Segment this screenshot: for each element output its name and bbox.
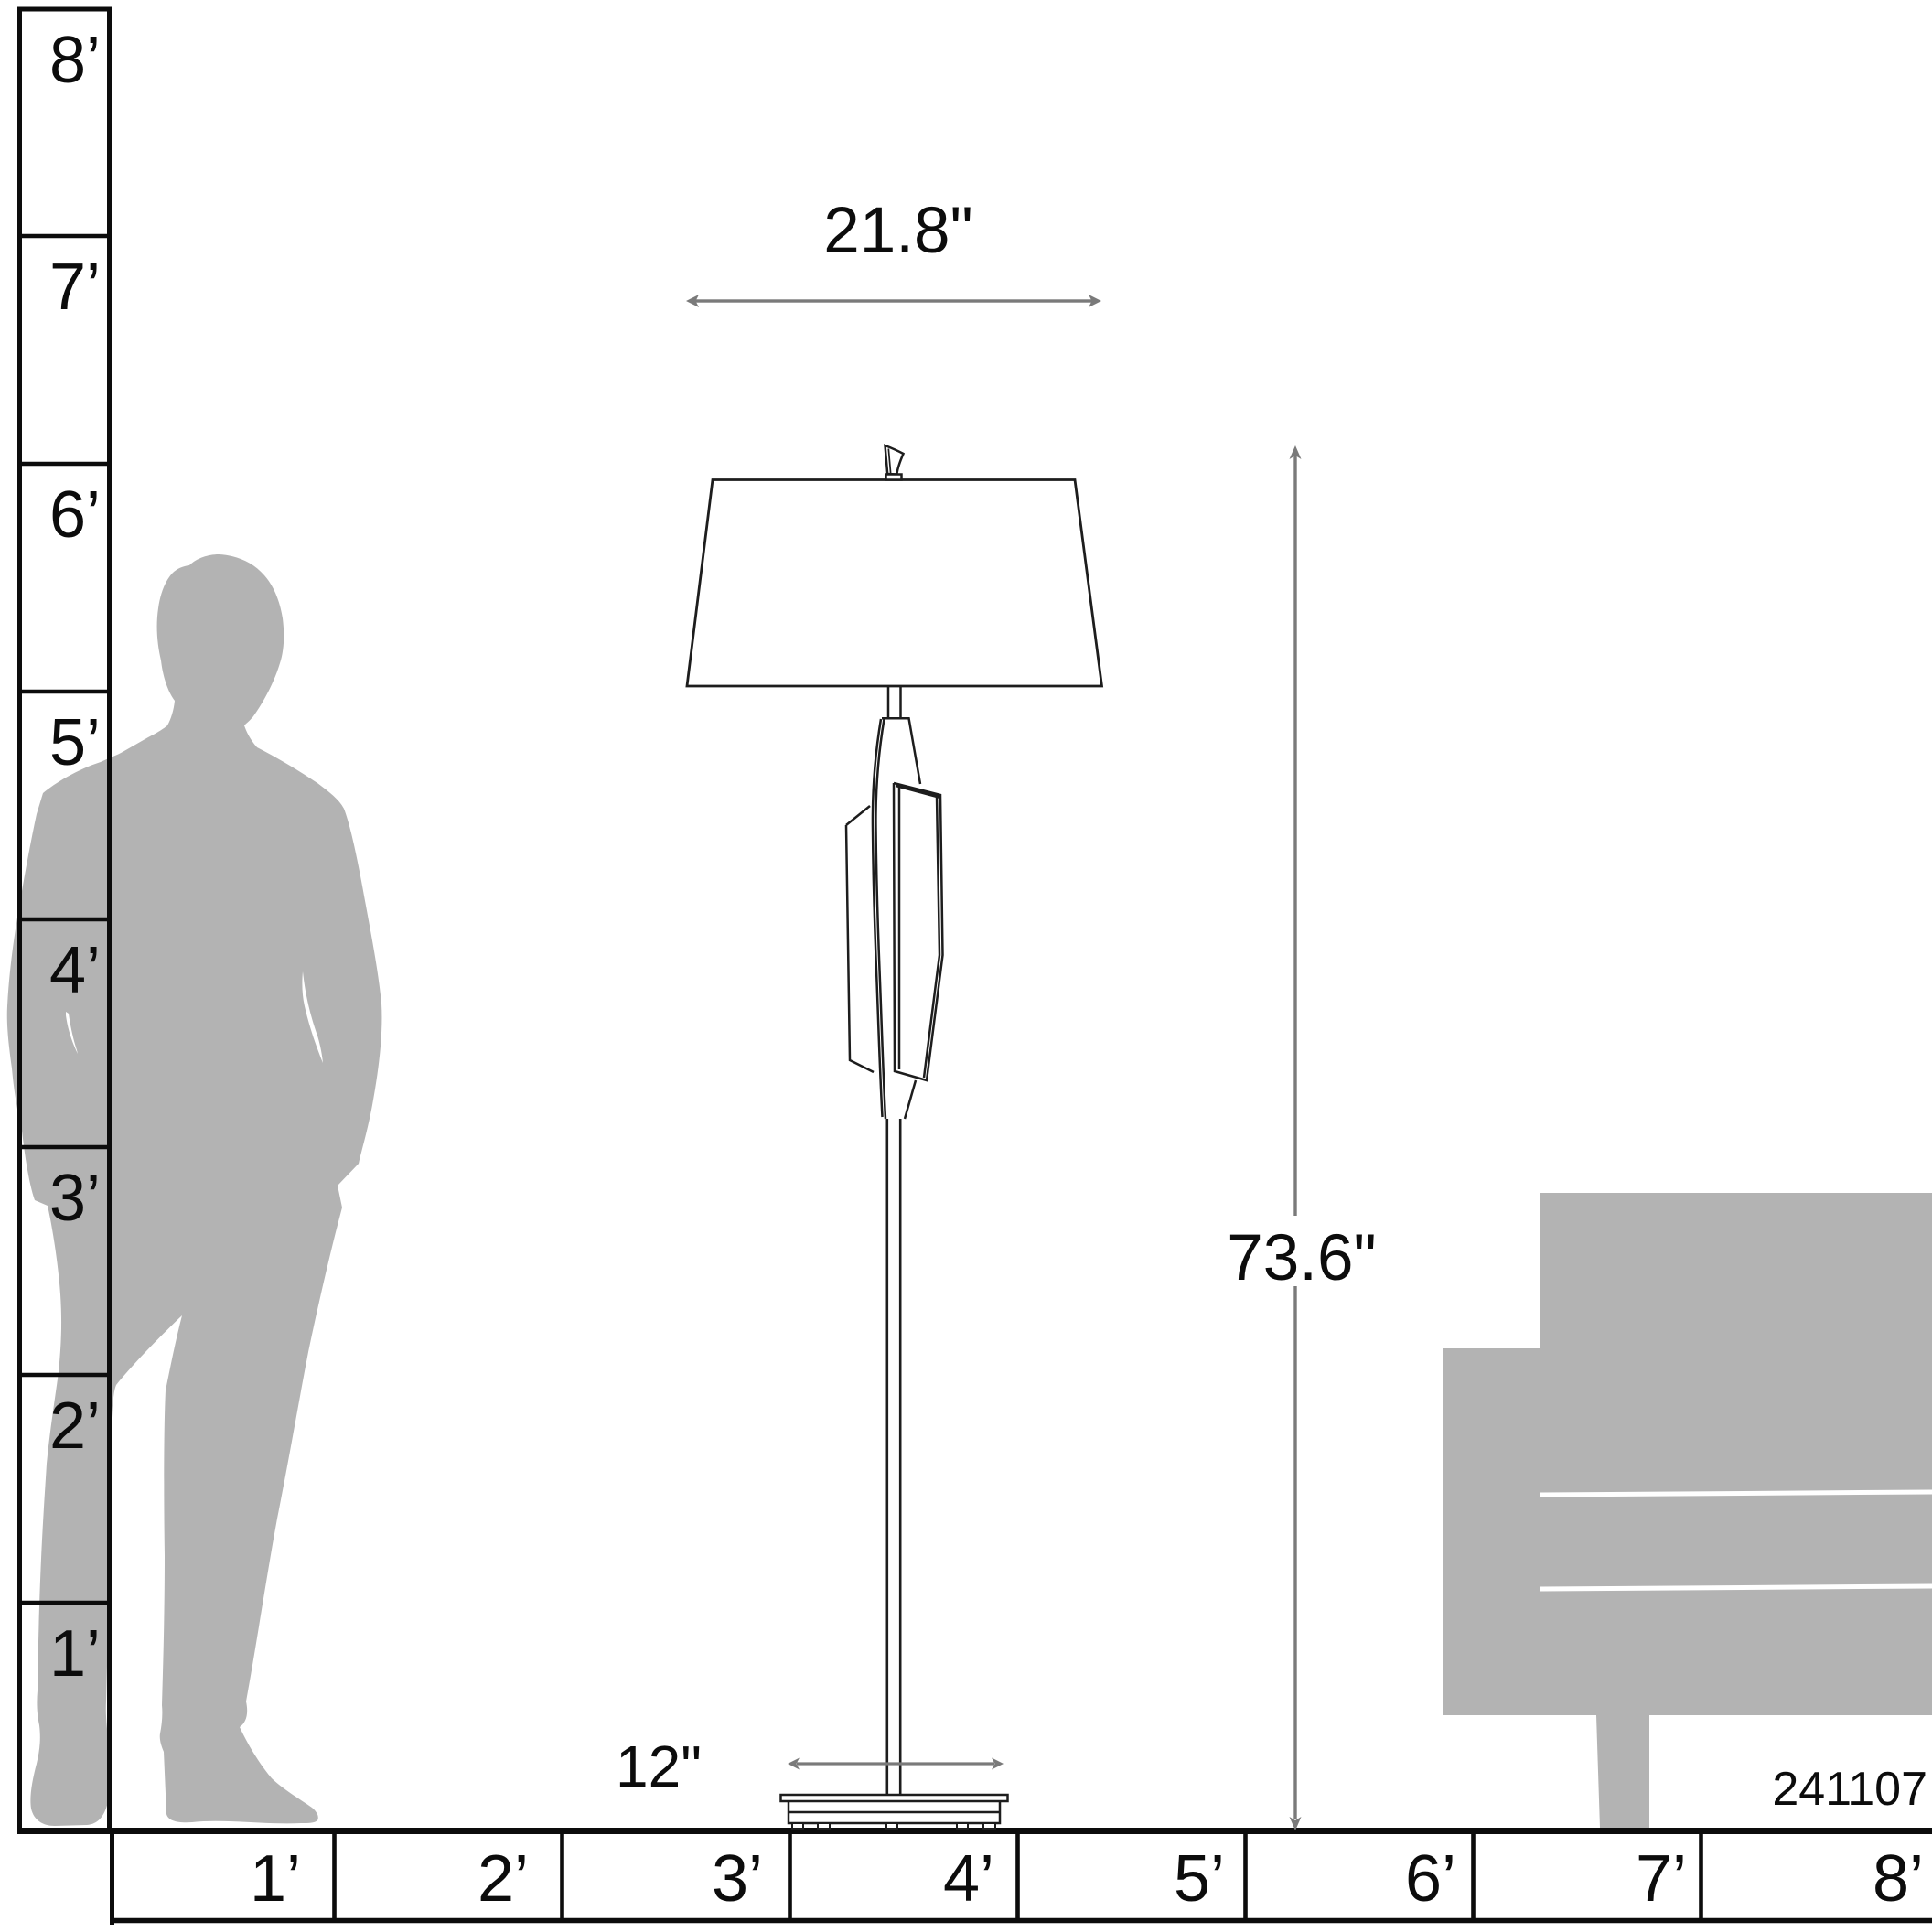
svg-text:73.6": 73.6"	[1227, 1222, 1376, 1294]
svg-text:5’: 5’	[1174, 1842, 1225, 1916]
svg-text:4’: 4’	[943, 1842, 994, 1916]
svg-text:2’: 2’	[478, 1842, 529, 1916]
svg-text:8’: 8’	[1873, 1842, 1924, 1916]
svg-text:1’: 1’	[250, 1842, 301, 1916]
svg-text:8’: 8’	[49, 24, 101, 97]
svg-text:5’: 5’	[49, 706, 101, 779]
svg-text:2’: 2’	[49, 1390, 101, 1463]
svg-text:6’: 6’	[49, 478, 101, 552]
svg-text:21.8": 21.8"	[823, 195, 972, 267]
svg-text:4’: 4’	[49, 934, 101, 1007]
svg-text:1’: 1’	[49, 1617, 101, 1690]
svg-text:12": 12"	[616, 1733, 702, 1799]
svg-text:3’: 3’	[712, 1842, 763, 1916]
svg-text:7’: 7’	[1636, 1842, 1687, 1916]
svg-text:3’: 3’	[49, 1162, 101, 1235]
svg-text:241107: 241107	[1772, 1763, 1927, 1816]
svg-text:7’: 7’	[49, 251, 101, 324]
svg-text:6’: 6’	[1405, 1842, 1456, 1916]
